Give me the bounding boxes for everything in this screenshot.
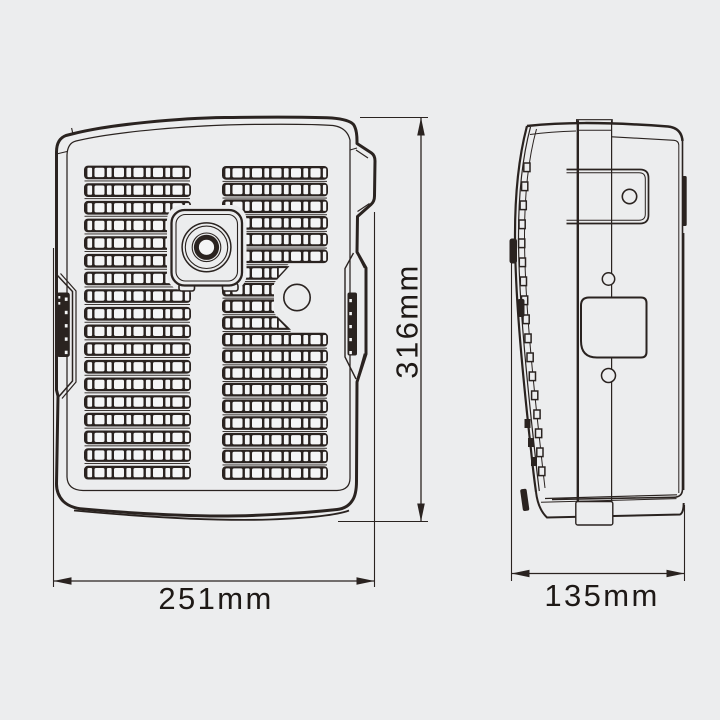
svg-text:135mm: 135mm (544, 578, 659, 613)
svg-text:251mm: 251mm (158, 581, 273, 616)
svg-text:316mm: 316mm (390, 263, 425, 378)
